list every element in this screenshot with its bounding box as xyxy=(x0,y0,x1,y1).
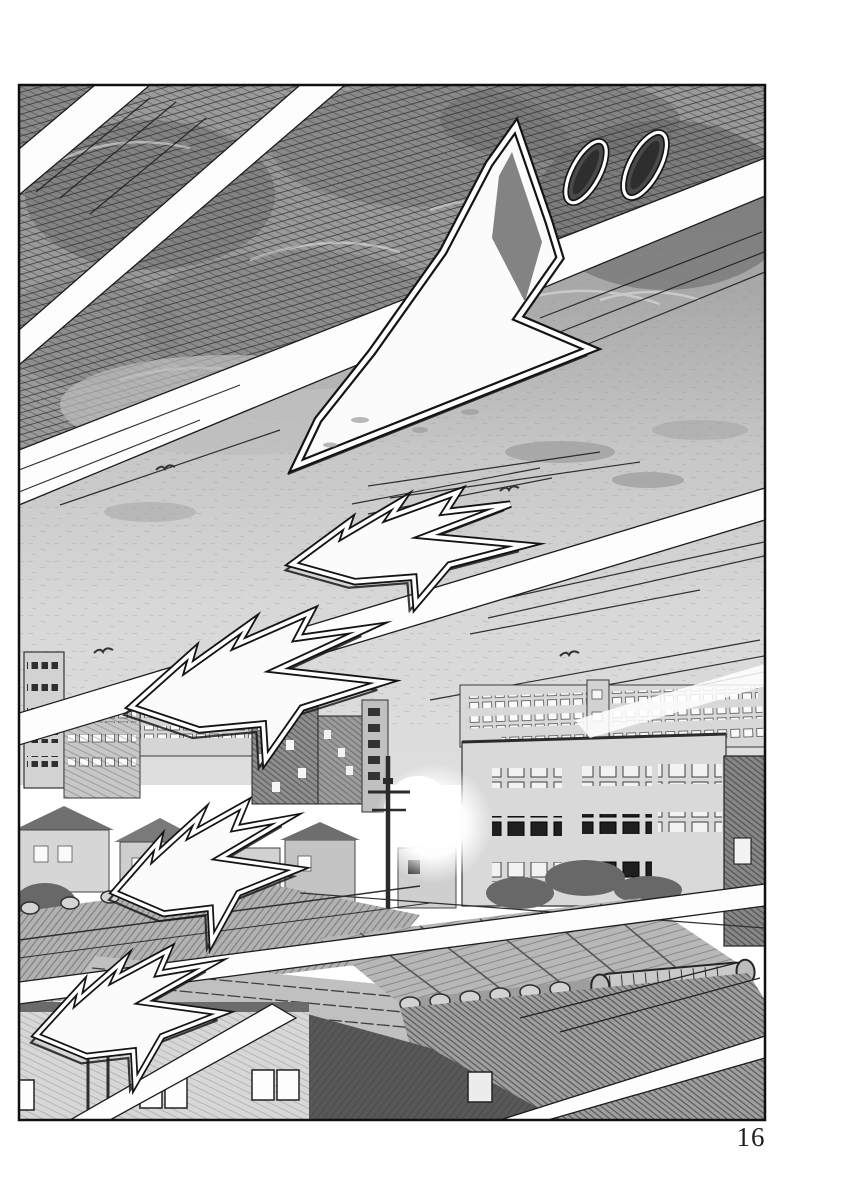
page-number: 16 xyxy=(726,1122,776,1153)
manga-page: 16 xyxy=(0,0,844,1200)
manga-panel-art xyxy=(0,0,844,1200)
